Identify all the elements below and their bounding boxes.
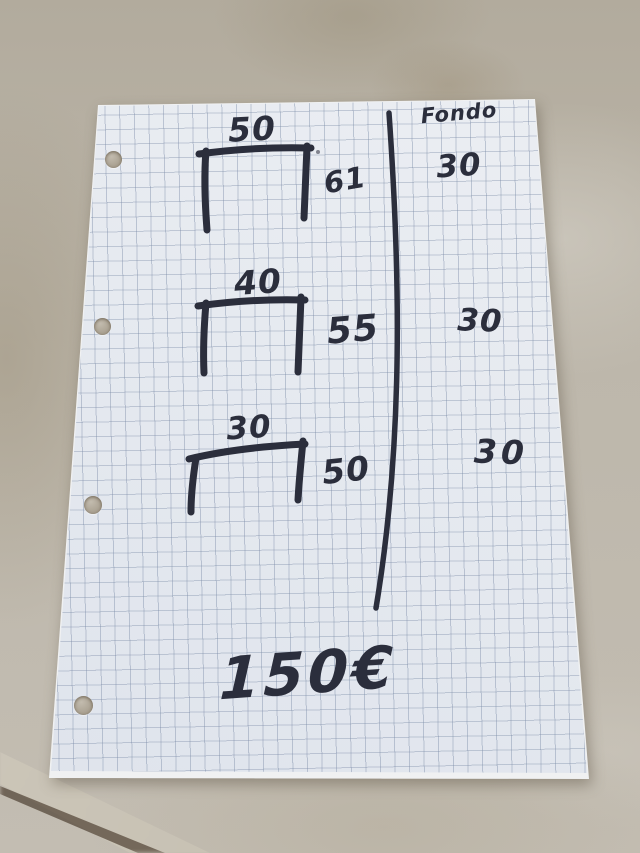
bracket-1-right-leg (304, 146, 307, 218)
bracket-3-right-leg (298, 441, 303, 500)
bracket-sketch-1 (199, 146, 320, 230)
bracket-3-left-leg (191, 458, 196, 512)
bracket-sketch-3 (189, 441, 305, 512)
bracket-2-right-leg (298, 297, 301, 372)
bracket-1-left-leg (205, 151, 207, 230)
width-dimension-1: 50 (227, 108, 277, 149)
fondo-value-2: 30 (457, 302, 503, 340)
side-dimension-3: 50 (320, 448, 372, 492)
divider-line (376, 113, 397, 608)
bracket-3-top-bar (189, 444, 305, 459)
photo-scene: Fondo 50 61 30 40 55 30 30 50 30 150€ (0, 0, 640, 853)
bracket-1-top-bar (199, 148, 311, 154)
fondo-value-1: 30 (435, 146, 483, 185)
fondo-value-3: 30 (473, 432, 528, 473)
bracket-sketch-2 (198, 297, 305, 373)
ink-speck (316, 150, 320, 154)
bracket-2-left-leg (204, 303, 206, 373)
price-total: 150€ (218, 633, 397, 714)
width-dimension-2: 40 (233, 261, 284, 303)
side-dimension-2: 55 (325, 307, 380, 352)
side-dimension-1: 61 (321, 160, 369, 201)
hand-drawn-marks (0, 0, 640, 853)
width-dimension-3: 30 (225, 408, 273, 447)
